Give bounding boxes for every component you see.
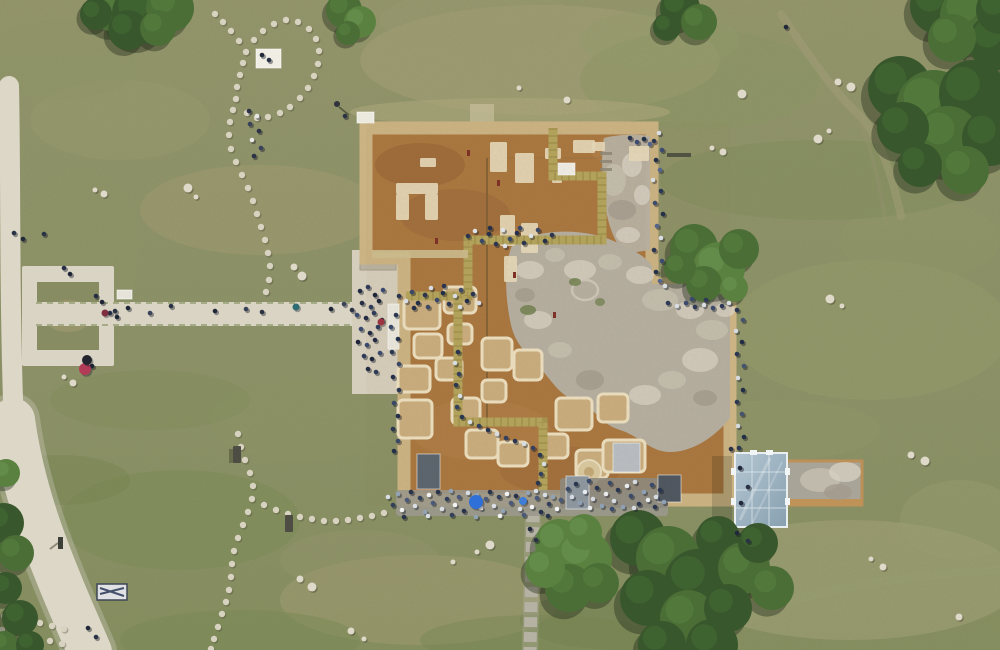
stepping-stone xyxy=(297,95,303,101)
mottle-patch xyxy=(548,342,572,358)
stone xyxy=(93,188,98,193)
bottom-walkway-crowd-person xyxy=(386,495,391,500)
tree-canopy-highlight xyxy=(754,570,776,592)
bottom-walkway-crowd-person xyxy=(559,498,564,503)
stepping-stone xyxy=(236,38,242,44)
bottom-walkway-crowd-person xyxy=(488,490,493,495)
stone xyxy=(298,272,307,281)
tree-canopy-highlight xyxy=(723,233,743,253)
bottom-right-crowd-person xyxy=(570,495,575,500)
bottom-right-crowd-person xyxy=(616,488,621,493)
plaza-crowd-person xyxy=(373,338,378,343)
grid-mark xyxy=(600,168,612,171)
mottle-patch xyxy=(515,288,535,302)
north-boardwalk-crowd-person xyxy=(487,232,492,237)
stepping-stone xyxy=(245,185,251,191)
bottom-right-crowd-person xyxy=(653,505,658,510)
bottom-walkway-crowd-person xyxy=(466,491,471,496)
stepping-stone xyxy=(277,110,283,116)
tree-canopy-highlight xyxy=(667,255,683,271)
bottom-right-crowd-person xyxy=(658,488,663,493)
north-boardwalk-crowd-person xyxy=(508,237,513,242)
bottom-right-crowd-person xyxy=(625,484,630,489)
stone-loop-group-person xyxy=(252,154,257,159)
bottom-right-crowd-person xyxy=(642,490,647,495)
stone xyxy=(451,560,456,565)
north-boardwalk-crowd-person xyxy=(480,239,485,244)
glass-cover-panel xyxy=(613,443,640,472)
foundation-mark xyxy=(490,142,507,172)
bottom-walkway-crowd-person xyxy=(551,495,556,500)
stone xyxy=(70,380,77,387)
mid-boardwalk-crowd-person xyxy=(471,292,476,297)
stone xyxy=(291,264,298,271)
tree-canopy-highlight xyxy=(616,516,644,544)
bench xyxy=(233,446,241,463)
plaza-crowd-person xyxy=(356,340,361,345)
stepping-stone xyxy=(273,507,279,513)
tree-canopy-highlight xyxy=(671,556,705,590)
tree-canopy-highlight xyxy=(338,23,350,35)
right-edge-north-line-person xyxy=(663,284,668,289)
tree-canopy-highlight xyxy=(583,567,603,587)
north-entry-stub xyxy=(470,104,494,124)
bottom-right-crowd-person xyxy=(637,502,642,507)
bottom-walkway-crowd-person xyxy=(450,513,455,518)
scattered-walkers-person xyxy=(12,231,17,236)
plaza-crowd-person xyxy=(358,289,363,294)
entry-path xyxy=(36,302,378,326)
plant-tuft xyxy=(520,305,536,315)
stepping-stone xyxy=(283,17,289,23)
right-edge-north-line-person xyxy=(660,259,665,264)
stepping-stone xyxy=(227,119,233,125)
tree-canopy-highlight xyxy=(685,8,703,26)
stone-loop-group-person xyxy=(255,114,260,119)
bottom-walkway-crowd-person xyxy=(497,495,502,500)
stepping-stone xyxy=(258,224,264,230)
west-edge-line-person xyxy=(396,337,401,342)
plaza-crowd-person xyxy=(359,327,364,332)
foundation-mark xyxy=(425,194,438,220)
stone xyxy=(921,457,930,466)
stone-loop-group-person xyxy=(259,146,264,151)
interior-curve-line-person xyxy=(538,453,543,458)
interior-curve-line-person xyxy=(504,436,509,441)
scattered-walkers-person xyxy=(528,527,533,532)
tree-canopy-highlight xyxy=(570,518,588,536)
west-edge-line-person xyxy=(397,362,402,367)
bottom-walkway-crowd-person xyxy=(413,504,418,509)
stepping-stone xyxy=(250,198,256,204)
square-junction-people-person xyxy=(62,266,67,271)
colored-figure xyxy=(519,497,527,505)
stepping-stone xyxy=(230,107,236,113)
right-edge-north-line-person xyxy=(652,248,657,253)
stone xyxy=(826,295,835,304)
interior-curve-line-person xyxy=(486,428,491,433)
scattered-walkers-person xyxy=(738,466,743,471)
right-edge-south-line-person xyxy=(742,364,747,369)
plaza-crowd-person xyxy=(373,293,378,298)
right-edge-north-line-person xyxy=(654,270,659,275)
excavated-pit xyxy=(598,394,628,422)
north-boardwalk-crowd-person xyxy=(501,228,506,233)
plaza-crowd-person xyxy=(366,285,371,290)
stone xyxy=(297,576,304,583)
north-boardwalk-crowd-person xyxy=(550,233,555,238)
stone xyxy=(710,146,715,151)
entry-path-walkers-person xyxy=(213,309,218,314)
stepping-stone xyxy=(212,11,218,17)
tree-canopy-highlight xyxy=(144,14,162,32)
tree-canopy-highlight xyxy=(643,626,667,650)
right-edge-north-line-person xyxy=(661,212,666,217)
east-step-line-person xyxy=(727,301,732,306)
bottom-walkway-crowd-person xyxy=(555,507,560,512)
survey-marker xyxy=(553,312,556,318)
bottom-right-crowd-person xyxy=(633,480,638,485)
bottom-right-crowd-person xyxy=(632,506,637,511)
east-step-line-person xyxy=(704,298,709,303)
survey-marker xyxy=(497,180,500,186)
mottle-patch xyxy=(634,185,650,205)
stepping-stone xyxy=(305,85,311,91)
stone-loop-group-person xyxy=(247,109,252,114)
plaza-crowd-person xyxy=(362,354,367,359)
excavated-pit xyxy=(398,366,430,392)
interior-curve-line-person xyxy=(542,462,547,467)
bottom-walkway-crowd-person xyxy=(449,489,454,494)
stone xyxy=(517,86,522,91)
stepping-stone xyxy=(228,146,234,152)
bottom-walkway-crowd-person xyxy=(505,492,510,497)
right-edge-south-line-person xyxy=(740,412,745,417)
tree-canopy-highlight xyxy=(691,624,717,650)
left-path xyxy=(9,86,14,428)
stepping-stone xyxy=(267,263,273,269)
east-step-line-person xyxy=(693,305,698,310)
bottom-walkway-crowd-person xyxy=(457,495,462,500)
bottom-right-crowd-person xyxy=(587,479,592,484)
stone xyxy=(348,628,355,635)
tree-canopy-highlight xyxy=(19,634,33,648)
right-edge-north-line-person xyxy=(660,148,665,153)
mid-boardwalk-crowd-person xyxy=(416,301,421,306)
north-boardwalk-crowd-person xyxy=(529,234,534,239)
scattered-walkers-person xyxy=(746,485,751,490)
stepping-stone xyxy=(226,587,232,593)
bottom-walkway-crowd-person xyxy=(462,509,467,514)
bottom-walkway-crowd-person xyxy=(400,508,405,513)
scattered-walkers-person xyxy=(729,447,734,452)
right-edge-south-line-person xyxy=(735,400,740,405)
west-edge-line-person xyxy=(392,401,397,406)
plaza-crowd-person xyxy=(366,367,371,372)
bottom-walkway-crowd-person xyxy=(453,503,458,508)
square-junction-people-person xyxy=(94,294,99,299)
stepping-stone xyxy=(211,636,217,642)
mottle-patch xyxy=(682,348,718,372)
plaza-crowd-person xyxy=(378,351,383,356)
interior-curve-line-person xyxy=(458,394,463,399)
stone xyxy=(847,83,856,92)
tree-canopy-highlight xyxy=(946,151,970,175)
scattered-walkers-person xyxy=(784,25,789,30)
bottom-right-crowd-person xyxy=(574,482,579,487)
stone xyxy=(835,79,842,86)
entry-path-walkers-person xyxy=(260,310,265,315)
tree-canopy-highlight xyxy=(675,229,699,253)
bench xyxy=(667,153,691,157)
entry-path-walkers-person xyxy=(169,304,174,309)
bottom-right-crowd-person xyxy=(600,504,605,509)
scattered-walkers-person xyxy=(735,531,740,536)
bottom-walkway-crowd-person xyxy=(445,497,450,502)
north-boardwalk-crowd-person xyxy=(494,242,499,247)
grid-mark xyxy=(600,152,612,155)
foundation-mark xyxy=(573,140,595,153)
survey-marker xyxy=(513,272,516,278)
stone xyxy=(738,90,747,99)
stone xyxy=(62,375,67,380)
right-edge-north-line-person xyxy=(628,136,633,141)
stone xyxy=(101,191,108,198)
bottom-walkway-crowd-person xyxy=(543,493,548,498)
mottle-patch xyxy=(598,254,622,270)
aerial-photo xyxy=(0,0,1000,650)
bottom-right-crowd-person xyxy=(650,483,655,488)
stone xyxy=(475,550,480,555)
square-junction-people-person xyxy=(115,315,120,320)
stepping-stone xyxy=(245,509,251,515)
bottom-walkway-crowd-person xyxy=(546,514,551,519)
east-step-line-person xyxy=(690,297,695,302)
bottom-walkway-crowd-person xyxy=(509,501,514,506)
foundation-mark xyxy=(515,153,534,183)
excavated-pit xyxy=(556,398,592,430)
grid-mark xyxy=(600,160,612,163)
entry-path-walkers-person xyxy=(350,308,355,313)
excavated-pit xyxy=(514,350,542,380)
right-edge-south-line-person xyxy=(740,340,745,345)
colored-figure xyxy=(469,495,483,509)
tree-canopy-highlight xyxy=(742,527,762,547)
mid-boardwalk-crowd-person xyxy=(423,293,428,298)
mid-boardwalk-crowd-person xyxy=(442,284,447,289)
bottom-walkway-crowd-person xyxy=(423,510,428,515)
bottom-right-crowd-person xyxy=(646,498,651,503)
tree-canopy-highlight xyxy=(700,520,722,542)
scattered-walkers-person xyxy=(42,232,47,237)
west-edge-line-person xyxy=(391,427,396,432)
mottle-patch xyxy=(608,200,636,220)
north-boardwalk-crowd-person xyxy=(536,228,541,233)
stepping-stone xyxy=(249,496,255,502)
west-edge-line-person xyxy=(391,375,396,380)
tree-canopy-highlight xyxy=(666,596,694,624)
stepping-stone xyxy=(287,104,293,110)
bottom-walkway-crowd-person xyxy=(409,490,414,495)
interior-curve-line-person xyxy=(477,424,482,429)
stepping-stone xyxy=(226,132,232,138)
stepping-stone xyxy=(231,548,237,554)
foundation-mark xyxy=(396,194,409,220)
interior-curve-line-person xyxy=(457,372,462,377)
interior-curve-line-person xyxy=(454,383,459,388)
scattered-walkers-person xyxy=(343,114,348,119)
stepping-stone xyxy=(233,159,239,165)
mid-boardwalk-crowd-person xyxy=(477,301,482,306)
bottom-right-crowd-person xyxy=(583,490,588,495)
excavated-pit xyxy=(398,400,432,438)
camera-tripod xyxy=(334,101,340,107)
stepping-stone xyxy=(265,250,271,256)
mid-boardwalk-crowd-person xyxy=(441,291,446,296)
north-boardwalk-crowd-person xyxy=(473,229,478,234)
bottom-right-crowd-person xyxy=(588,506,593,511)
right-edge-south-line-person xyxy=(741,318,746,323)
bottom-right-crowd-person xyxy=(604,492,609,497)
stepping-stone xyxy=(233,96,239,102)
tree-canopy-highlight xyxy=(709,589,733,613)
interior-curve-line-person xyxy=(455,405,460,410)
bottom-walkway-crowd-person xyxy=(436,490,441,495)
interior-curve-line-person xyxy=(522,442,527,447)
stone xyxy=(184,184,193,193)
interior-curve-line-person xyxy=(460,415,465,420)
bottom-walkway-crowd-person xyxy=(498,514,503,519)
stepping-stone xyxy=(234,84,240,90)
mid-boardwalk-crowd-person xyxy=(465,299,470,304)
west-edge-line-person xyxy=(394,313,399,318)
bottom-walkway-crowd-person xyxy=(427,493,432,498)
interior-curve-line-person xyxy=(495,432,500,437)
right-edge-north-line-person xyxy=(658,279,663,284)
right-edge-north-line-person xyxy=(655,224,660,229)
plaza-crowd-person xyxy=(364,316,369,321)
bottom-right-crowd-person xyxy=(629,494,634,499)
foundation-mark xyxy=(629,146,649,161)
excavated-pit xyxy=(466,430,498,458)
bottom-walkway-crowd-person xyxy=(514,494,519,499)
north-boardwalk-crowd-person xyxy=(503,244,508,249)
north-boardwalk-crowd-person xyxy=(522,241,527,246)
right-edge-north-line-person xyxy=(659,236,664,241)
stepping-stone xyxy=(223,599,229,605)
bottom-right-crowd-person xyxy=(610,507,615,512)
entry-path-walkers-person xyxy=(244,307,249,312)
stone-loop-group-person xyxy=(250,138,255,143)
bench xyxy=(285,515,293,532)
right-edge-south-line-person xyxy=(734,329,739,334)
plant-tuft xyxy=(595,298,605,306)
west-edge-line-person xyxy=(392,449,397,454)
stepping-stone xyxy=(242,457,248,463)
entry-path-walkers-person xyxy=(126,306,131,311)
tree-canopy-highlight xyxy=(723,277,737,291)
glass-cover-panel xyxy=(558,163,575,175)
stepping-stone xyxy=(228,28,234,34)
east-step-line-person xyxy=(684,301,689,306)
east-step-line-person xyxy=(666,301,671,306)
bottom-walkway-crowd-person xyxy=(547,502,552,507)
plaza-crowd-person xyxy=(369,305,374,310)
bottom-walkway-crowd-person xyxy=(431,501,436,506)
interior-curve-line-person xyxy=(539,472,544,477)
stepping-stone xyxy=(250,483,256,489)
west-edge-line-person xyxy=(396,414,401,419)
stepping-stone xyxy=(266,277,272,283)
interior-curve-line-person xyxy=(468,420,473,425)
bottom-walkway-crowd-person xyxy=(402,515,407,520)
stone xyxy=(869,557,874,562)
north-boardwalk-crowd-person xyxy=(488,226,493,231)
mottle-patch xyxy=(576,370,604,390)
right-edge-north-line-person xyxy=(642,137,647,142)
stepping-stone xyxy=(333,518,339,524)
glass-cover-panel xyxy=(417,454,440,489)
east-step-line-person xyxy=(720,304,725,309)
stepping-stone xyxy=(61,626,67,632)
bottom-walkway-crowd-person xyxy=(426,514,431,519)
plaza-crowd-person xyxy=(377,299,382,304)
scattered-walkers-person xyxy=(94,635,99,640)
interior-curve-line-person xyxy=(534,489,539,494)
west-edge-line-person xyxy=(396,439,401,444)
tree-canopy-highlight xyxy=(882,107,908,133)
tree-canopy-highlight xyxy=(83,1,99,17)
stepping-stone xyxy=(254,211,260,217)
tree-canopy-highlight xyxy=(6,604,24,622)
colored-figure xyxy=(293,304,300,311)
stepping-stone xyxy=(345,517,351,523)
right-edge-north-line-person xyxy=(652,139,657,144)
stone xyxy=(486,541,495,550)
entry-path-walkers-person xyxy=(329,307,334,312)
stone xyxy=(564,97,571,104)
right-edge-south-line-person xyxy=(736,424,741,429)
stepping-stone xyxy=(219,611,225,617)
excavated-pit xyxy=(482,380,506,402)
mottle-patch xyxy=(658,371,686,389)
entry-path-walkers-person xyxy=(342,302,347,307)
right-edge-north-line-person xyxy=(651,178,656,183)
mid-boardwalk-crowd-person xyxy=(453,294,458,299)
rubble-trench-rim xyxy=(786,499,862,506)
sign-post xyxy=(58,537,63,549)
right-edge-north-line-person xyxy=(658,168,663,173)
stepping-stone xyxy=(263,289,269,295)
tree-canopy-highlight xyxy=(968,116,996,144)
stone xyxy=(956,614,963,621)
bottom-right-crowd-person xyxy=(612,499,617,504)
interior-curve-line-person xyxy=(513,439,518,444)
mottle-patch xyxy=(626,266,654,284)
mottle-patch xyxy=(516,261,544,279)
right-edge-north-line-person xyxy=(653,201,658,206)
interior-curve-line-person xyxy=(536,481,541,486)
bottom-walkway-crowd-person xyxy=(522,513,527,518)
mid-boardwalk-crowd-person xyxy=(458,305,463,310)
bottom-walkway-crowd-person xyxy=(539,510,544,515)
stepping-stone xyxy=(262,237,268,243)
bottom-walkway-crowd-person xyxy=(396,492,401,497)
right-edge-north-line-person xyxy=(654,158,659,163)
bottom-walkway-crowd-person xyxy=(530,505,535,510)
tree-canopy-highlight xyxy=(642,532,674,564)
mottle-patch xyxy=(829,462,861,482)
